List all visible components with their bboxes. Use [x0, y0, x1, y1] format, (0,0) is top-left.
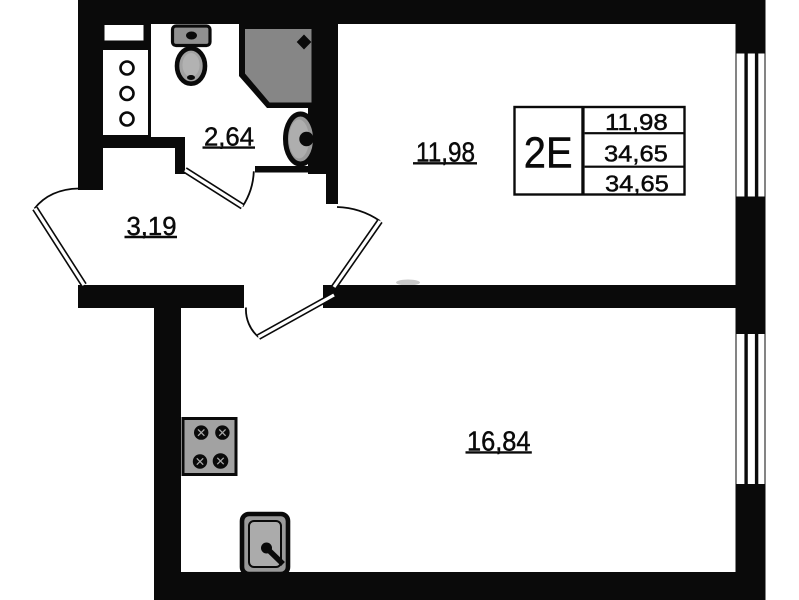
svg-text:34,65: 34,65	[605, 170, 669, 196]
svg-text:34,65: 34,65	[604, 140, 668, 166]
svg-text:11,98: 11,98	[605, 109, 668, 135]
svg-text:2E: 2E	[524, 130, 573, 178]
